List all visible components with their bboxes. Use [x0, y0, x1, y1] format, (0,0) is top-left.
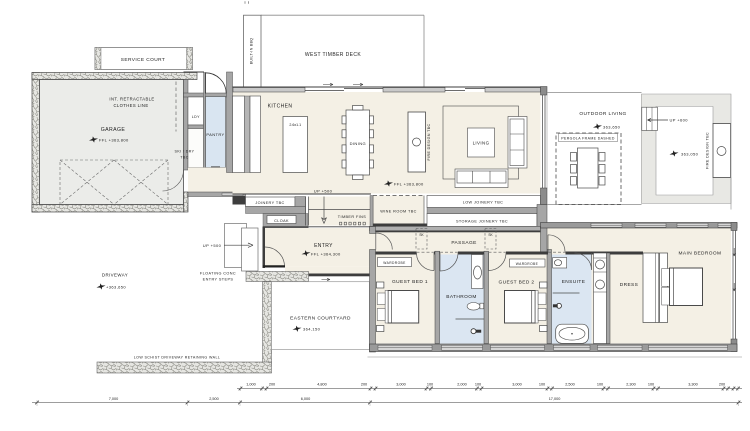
- svg-text:LDY: LDY: [192, 115, 200, 119]
- svg-text:CLOTHES LINE: CLOTHES LINE: [113, 103, 148, 108]
- svg-text:PANTRY: PANTRY: [206, 132, 224, 137]
- svg-text:3,000: 3,000: [396, 383, 406, 387]
- svg-text:KITCHEN: KITCHEN: [268, 104, 293, 110]
- svg-text:1,000: 1,000: [246, 383, 256, 387]
- svg-text:PASSAGE: PASSAGE: [451, 240, 476, 246]
- svg-text:UP +600: UP +600: [670, 118, 689, 123]
- svg-text:FFL +364,300: FFL +364,300: [311, 251, 341, 256]
- svg-text:2.6x1.1: 2.6x1.1: [289, 123, 301, 127]
- svg-text:FFL +363,800: FFL +363,800: [394, 182, 424, 187]
- svg-text:PERGOLA FRAME DASHED: PERGOLA FRAME DASHED: [561, 137, 615, 141]
- svg-text:UP +500: UP +500: [314, 189, 333, 194]
- svg-text:FIRE DESIGN TBC: FIRE DESIGN TBC: [706, 132, 710, 169]
- svg-text:LIVING: LIVING: [473, 141, 490, 146]
- svg-text:363,650: 363,650: [603, 125, 621, 130]
- svg-text:364,150: 364,150: [303, 327, 321, 332]
- svg-text:2,300: 2,300: [626, 383, 636, 387]
- svg-text:LOW JOINERY TBC: LOW JOINERY TBC: [463, 201, 504, 205]
- svg-text:OUTDOOR LIVING: OUTDOOR LIVING: [579, 111, 626, 117]
- svg-text:DINING: DINING: [350, 141, 366, 146]
- svg-text:INT. RETRACTABLE: INT. RETRACTABLE: [109, 97, 154, 102]
- svg-text:363,050: 363,050: [681, 152, 699, 157]
- svg-text:EASTERN COURTYARD: EASTERN COURTYARD: [290, 316, 351, 322]
- svg-text:ENTRY STEPS: ENTRY STEPS: [203, 278, 234, 282]
- svg-text:TIMBER FINS: TIMBER FINS: [338, 215, 367, 219]
- svg-text:DRIVEWAY: DRIVEWAY: [102, 273, 128, 278]
- svg-text:100: 100: [597, 383, 603, 387]
- svg-text:2,000: 2,000: [457, 383, 467, 387]
- svg-text:TBC: TBC: [180, 156, 188, 160]
- svg-text:100: 100: [539, 383, 545, 387]
- svg-text:200: 200: [719, 383, 725, 387]
- svg-text:GUEST BED 2: GUEST BED 2: [498, 280, 534, 286]
- svg-text:ENSUITE: ENSUITE: [562, 279, 586, 285]
- svg-text:17,000: 17,000: [549, 397, 561, 401]
- svg-text:7,000: 7,000: [109, 397, 119, 401]
- svg-text:2,500: 2,500: [209, 397, 219, 401]
- svg-text:WARDROBE: WARDROBE: [516, 262, 539, 266]
- svg-text:FFL +363,800: FFL +363,800: [99, 138, 129, 143]
- svg-text:SERVICE COURT: SERVICE COURT: [121, 57, 165, 63]
- svg-text:STORAGE JOINERY TBC: STORAGE JOINERY TBC: [456, 220, 508, 224]
- svg-text:100: 100: [475, 383, 481, 387]
- svg-text:BATHROOM: BATHROOM: [446, 294, 477, 300]
- svg-text:+363,650: +363,650: [106, 285, 126, 290]
- svg-text:FIRE DESIGN TBC: FIRE DESIGN TBC: [427, 123, 431, 160]
- svg-text:3,300: 3,300: [688, 383, 698, 387]
- svg-text:WARDROBE: WARDROBE: [383, 261, 406, 265]
- svg-text:SKI / DRY: SKI / DRY: [175, 150, 195, 154]
- svg-text:100: 100: [427, 383, 433, 387]
- svg-text:6,000: 6,000: [301, 397, 311, 401]
- svg-text:FLOATING CONC: FLOATING CONC: [200, 272, 236, 276]
- svg-text:200: 200: [269, 383, 275, 387]
- svg-text:4,800: 4,800: [317, 383, 327, 387]
- svg-text:3,000: 3,000: [512, 383, 522, 387]
- svg-text:LOW SCHIST DRIVEWAY RETAINING: LOW SCHIST DRIVEWAY RETAINING WALL: [134, 356, 221, 360]
- svg-text:200: 200: [361, 383, 367, 387]
- svg-text:JOINERY TBC: JOINERY TBC: [255, 201, 284, 205]
- svg-text:DRESS: DRESS: [620, 282, 639, 288]
- svg-text:MAIN BEDROOM: MAIN BEDROOM: [679, 251, 722, 257]
- svg-text:WINE ROOM TBC: WINE ROOM TBC: [380, 210, 417, 214]
- svg-text:CLOAK: CLOAK: [274, 219, 289, 223]
- svg-text:WEST TIMBER DECK: WEST TIMBER DECK: [305, 52, 361, 58]
- svg-text:ENTRY: ENTRY: [314, 243, 333, 249]
- svg-text:GUEST BED 1: GUEST BED 1: [392, 279, 428, 285]
- svg-text:BUILT-IN BBQ: BUILT-IN BBQ: [249, 38, 253, 65]
- svg-text:UP +500: UP +500: [203, 243, 222, 248]
- svg-text:100: 100: [648, 383, 654, 387]
- svg-text:2,500: 2,500: [565, 383, 575, 387]
- svg-text:GARAGE: GARAGE: [101, 127, 126, 133]
